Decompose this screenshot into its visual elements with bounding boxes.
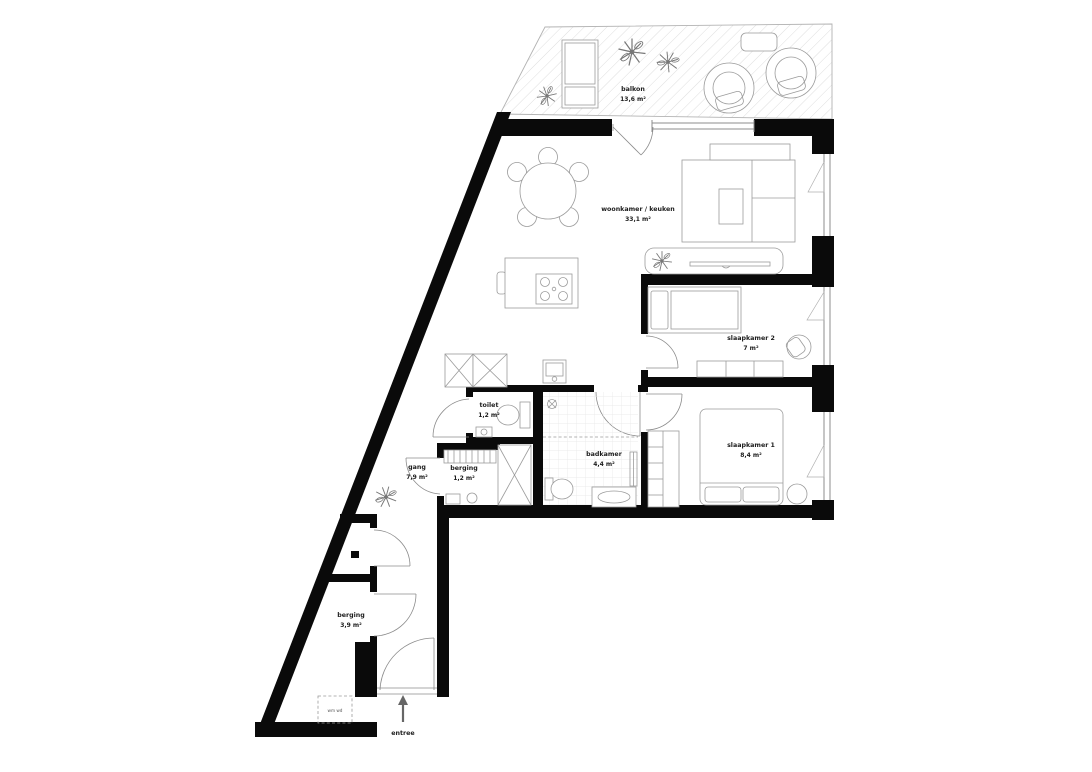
laundry-label: wm wd [328,708,343,713]
wall-storage-small-left-a [437,443,444,458]
wardrobe-closet [473,354,507,387]
armchair [785,335,811,359]
bedroom2-furniture [648,287,811,377]
door-storage-a [374,530,410,566]
plant-icon [373,484,399,510]
wall-diagonal-left [255,112,511,737]
wall-berging-block [355,642,377,697]
door-balcony [613,124,653,155]
wall-bathroom-top [533,385,594,392]
door-bedroom1 [646,394,682,430]
sofa [682,144,795,242]
wall-storage-small-top [437,443,500,450]
label-toilet: toilet [480,402,499,409]
wall-mark-2 [357,659,365,666]
wardrobe-closet [445,354,473,387]
area-berging-groot: 3,9 m² [340,622,362,629]
toilet-sink [476,427,492,437]
label-badkamer: badkamer [586,451,623,458]
label-woonkamer: woonkamer / keuken [601,206,675,213]
window-pane-triangle [807,445,824,477]
bathroom-wc [545,478,573,500]
wall-mark-1 [351,551,359,558]
balcony [500,24,832,119]
label-entree: entree [391,730,414,737]
label-slaapkamer2: slaapkamer 2 [727,335,775,342]
wall-bedroom2-top [641,274,834,285]
arrow-head-icon [398,695,408,705]
window-top [652,120,754,132]
window-pane-triangle [807,292,824,320]
area-woonkamer: 33,1 m² [625,216,651,223]
wall-between-bedrooms [641,377,812,387]
area-gang: 7,9 m² [406,474,428,481]
entrance-arrow [398,695,408,722]
wall-storage-small-left-b [437,496,444,508]
shelf [444,450,496,463]
area-toilet: 1,2 m² [478,412,500,419]
wall-storagea-right-a [370,514,377,528]
area-badkamer: 4,4 m² [593,461,615,468]
wall-top-right [754,119,834,136]
laundry-area: wm wd [318,696,352,723]
boiler [467,493,477,503]
area-berging-klein: 1,2 m² [453,475,475,482]
wall-bottom-outer [255,722,377,737]
window-right-3 [807,412,830,500]
washbasin [592,487,636,507]
wall-bedroom1-left [641,432,648,508]
wall-bathroom-left [533,385,543,508]
wall-right-pier-3 [812,365,834,412]
window-right-1 [808,154,830,236]
label-slaapkamer1: slaapkamer 1 [727,442,775,449]
bed-2 [648,287,741,333]
balcony-table [741,33,777,51]
wall-top-left [496,119,612,136]
door-berging [374,594,416,636]
label-gang: gang [408,464,426,471]
balcony-chair-right [766,48,816,98]
dining-set [508,148,589,227]
tall-closet [498,445,531,505]
fixture-basin [543,360,566,383]
kitchen-island [497,258,578,308]
wall-nib-1 [641,370,648,387]
label-balkon: balkon [621,86,645,93]
tv-cabinet [645,248,783,274]
area-balkon: 13,6 m² [620,96,646,103]
wall-right-pier-1 [812,136,834,154]
window-right-2 [807,287,830,365]
wall-toilet-bottom [466,437,533,444]
balcony-chair-left [704,63,754,113]
bathroom [543,392,638,507]
wardrobe-bedroom1 [648,431,679,507]
wall-corridor-right [437,505,449,697]
wall-bedroom2-left [641,278,648,334]
balcony-lounger [562,40,598,108]
area-slaapkamer2: 7 m² [743,345,759,352]
door-toilet [433,399,469,437]
label-berging-groot: berging [337,612,365,619]
floorplan-page: wm wd balkon 13,6 m² woonkamer / keuken … [0,0,1092,772]
wall-nib-2 [638,385,648,392]
bedroom1-furniture [648,409,807,507]
side-table [787,484,807,504]
boiler-unit [446,494,460,504]
label-berging-klein: berging [450,465,478,472]
area-slaapkamer1: 8,4 m² [740,452,762,459]
coffee-table [719,189,743,224]
floorplan-canvas: wm wd balkon 13,6 m² woonkamer / keuken … [0,0,1092,772]
wall-storage-divider [318,574,377,582]
door-bedroom2 [646,336,678,368]
toilet-wc [497,402,530,428]
door-entrance [377,638,437,694]
dining-table [520,163,576,219]
window-pane-triangle [808,162,824,192]
dresser [697,361,783,377]
